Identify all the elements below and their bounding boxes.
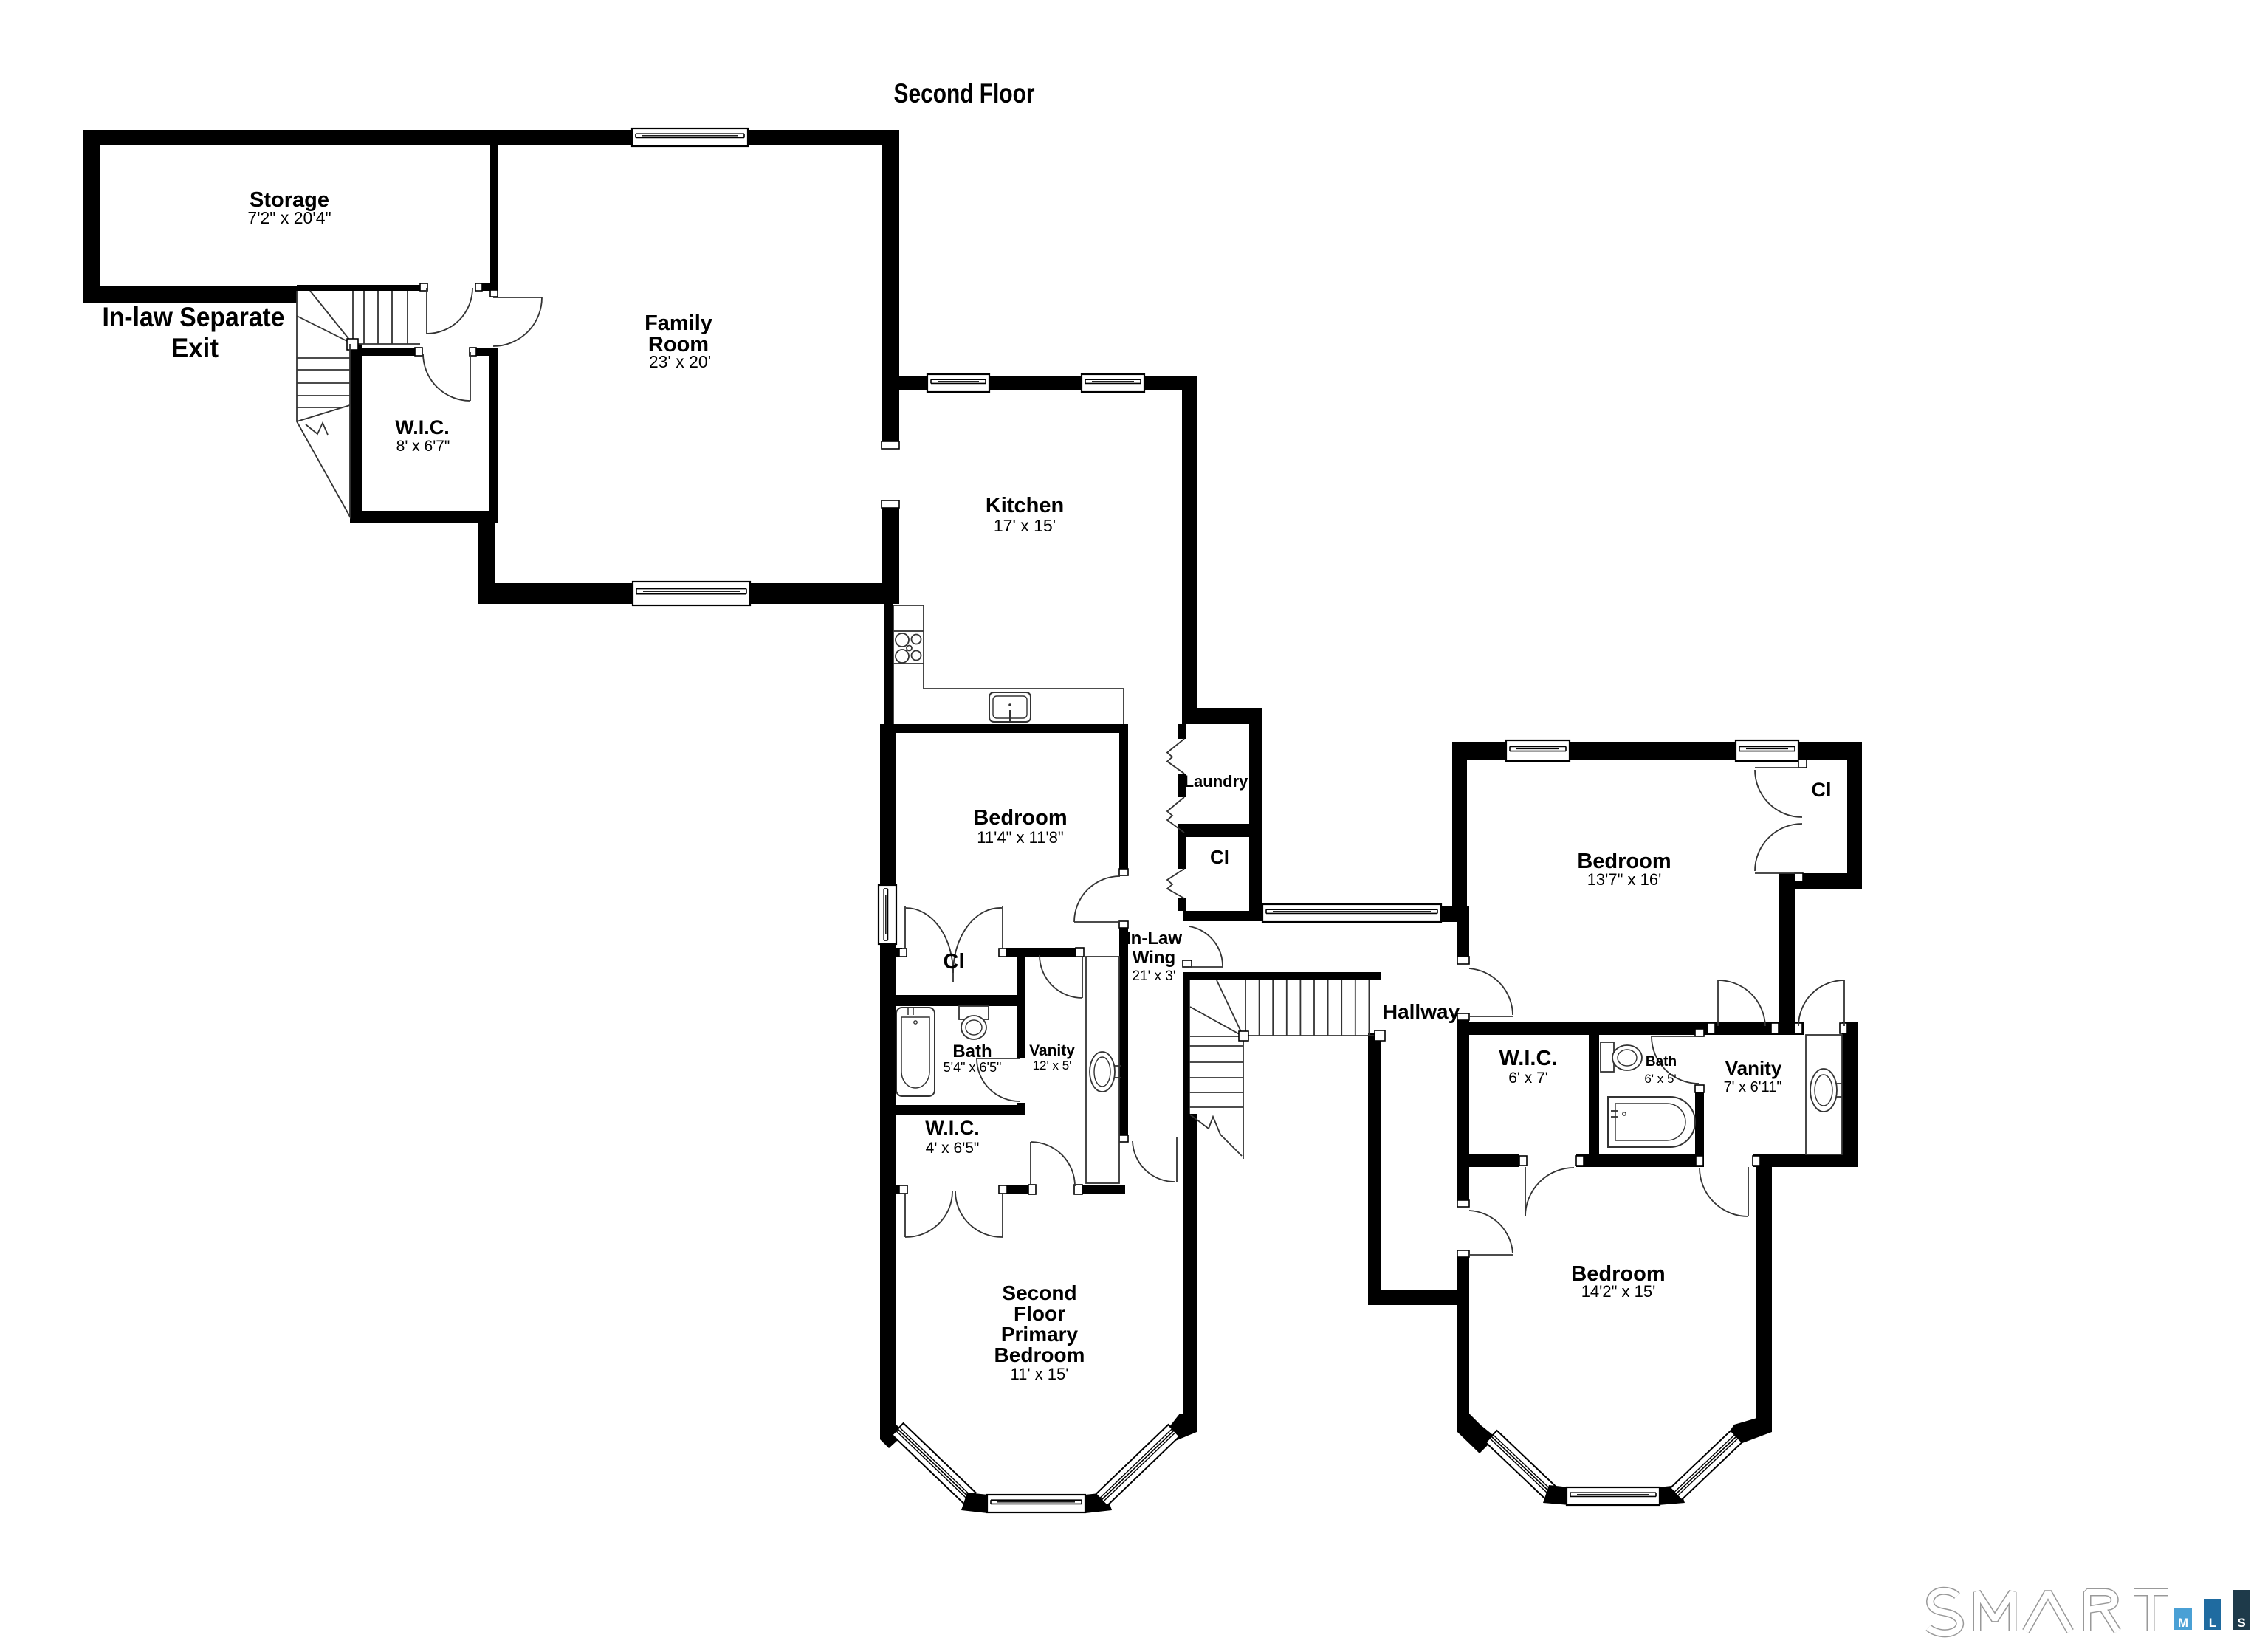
svg-text:8' x 6'7": 8' x 6'7" (396, 438, 450, 455)
svg-text:In-Law: In-Law (1126, 929, 1182, 949)
svg-text:Wing: Wing (1133, 948, 1175, 968)
svg-text:7'2" x 20'4": 7'2" x 20'4" (247, 208, 331, 227)
svg-text:Bedroom: Bedroom (973, 806, 1067, 830)
svg-text:4' x 6'5": 4' x 6'5" (926, 1140, 980, 1157)
svg-text:12' x 5': 12' x 5' (1033, 1058, 1072, 1073)
svg-text:Cl: Cl (1210, 846, 1229, 868)
svg-text:6' x 7': 6' x 7' (1508, 1070, 1548, 1087)
svg-text:Family: Family (645, 311, 712, 335)
svg-text:17' x 15': 17' x 15' (994, 516, 1056, 535)
svg-text:Vanity: Vanity (1725, 1057, 1782, 1079)
svg-text:Laundry: Laundry (1184, 772, 1249, 791)
svg-text:7' x 6'11": 7' x 6'11" (1724, 1079, 1782, 1095)
svg-text:11' x 15': 11' x 15' (1011, 1365, 1069, 1383)
svg-text:Bath: Bath (1646, 1054, 1677, 1070)
svg-text:M: M (2178, 1616, 2188, 1630)
svg-text:23' x 20': 23' x 20' (649, 352, 711, 371)
svg-text:Vanity: Vanity (1029, 1042, 1075, 1059)
svg-text:Primary: Primary (1001, 1323, 1079, 1346)
svg-text:In-law Separate: In-law Separate (103, 302, 285, 332)
svg-text:Kitchen: Kitchen (986, 494, 1064, 517)
svg-text:Second: Second (1002, 1281, 1076, 1304)
svg-text:Second Floor: Second Floor (894, 78, 1035, 109)
svg-text:Cl: Cl (944, 950, 965, 974)
svg-text:13'7" x 16': 13'7" x 16' (1587, 870, 1662, 889)
svg-text:W.I.C.: W.I.C. (1499, 1047, 1558, 1070)
svg-text:W.I.C.: W.I.C. (925, 1117, 980, 1139)
svg-text:Bedroom: Bedroom (994, 1343, 1085, 1366)
svg-text:6' x 5': 6' x 5' (1644, 1072, 1676, 1086)
svg-text:L: L (2209, 1616, 2216, 1630)
svg-text:Bath: Bath (952, 1042, 992, 1061)
svg-text:5'4" x 6'5": 5'4" x 6'5" (944, 1060, 1002, 1075)
svg-text:S: S (2237, 1616, 2245, 1630)
svg-text:W.I.C.: W.I.C. (395, 416, 450, 438)
svg-text:14'2" x 15': 14'2" x 15' (1581, 1282, 1656, 1301)
svg-text:Floor: Floor (1014, 1302, 1065, 1325)
svg-text:Hallway: Hallway (1383, 1000, 1460, 1023)
svg-text:Cl: Cl (1812, 779, 1832, 801)
svg-text:21' x 3': 21' x 3' (1132, 968, 1175, 984)
svg-text:11'4" x 11'8": 11'4" x 11'8" (977, 828, 1063, 847)
svg-text:Exit: Exit (171, 333, 219, 363)
